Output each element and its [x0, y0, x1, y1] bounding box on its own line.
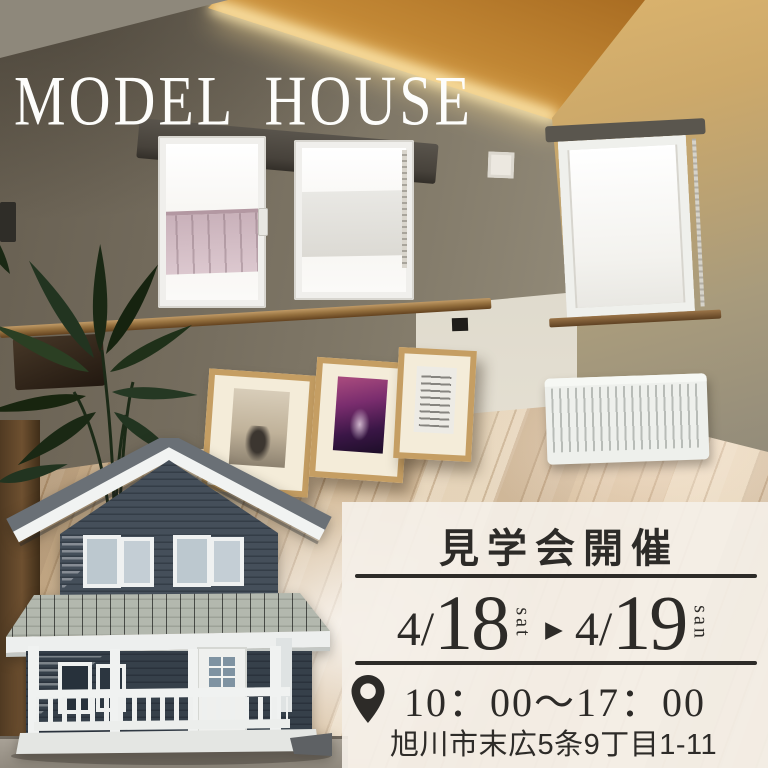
porch-roof [6, 593, 330, 637]
radiator [545, 373, 710, 465]
event-heading: 見学会開催 [342, 516, 768, 574]
porch-base [16, 729, 319, 754]
framed-art-2 [333, 376, 388, 453]
start-weekday-box: sat [508, 585, 535, 659]
main-title: MODEL HOUSE [14, 60, 768, 142]
start-weekday: sat [510, 608, 533, 639]
shade-pull-chain [402, 150, 407, 268]
event-dates: 4/ 18 sat ▶ 4/ 19 san [342, 579, 768, 659]
event-address: 旭川市末広5条9丁目1-11 [390, 721, 766, 763]
wall-outlet [452, 318, 468, 332]
porch-railing [34, 687, 290, 731]
flyer-root: MODEL HOUSE 見学会開催 4/ 18 sat ▶ 4/ 19 san … [0, 0, 768, 768]
wall-vent [488, 152, 515, 179]
arrow-right-icon: ▶ [545, 617, 563, 643]
window-glass [569, 145, 683, 308]
start-date-month: 4/ [397, 606, 434, 659]
window-handle [258, 208, 268, 236]
left-window-pane-2 [294, 140, 414, 300]
roll-screen-chain [692, 139, 705, 307]
end-weekday-box: san [686, 585, 713, 659]
end-weekday: san [688, 606, 711, 642]
framed-art-3 [414, 366, 457, 434]
event-time: 10：00〜17：00 [342, 670, 768, 728]
event-panel: 見学会開催 4/ 18 sat ▶ 4/ 19 san 10：00〜17：00 … [342, 502, 768, 768]
model-house-cutout [6, 438, 332, 768]
divider-bottom [355, 661, 757, 665]
start-date-day: 18 [434, 587, 508, 659]
end-date-month: 4/ [575, 606, 612, 659]
picture-frame-3 [393, 347, 477, 462]
neighbor-house-view [302, 190, 406, 257]
right-window-frame [558, 135, 695, 317]
end-date-day: 19 [612, 587, 686, 659]
location-pin-icon [350, 672, 386, 726]
window-glass [302, 148, 406, 292]
divider-top [355, 574, 757, 578]
right-window [545, 112, 720, 326]
